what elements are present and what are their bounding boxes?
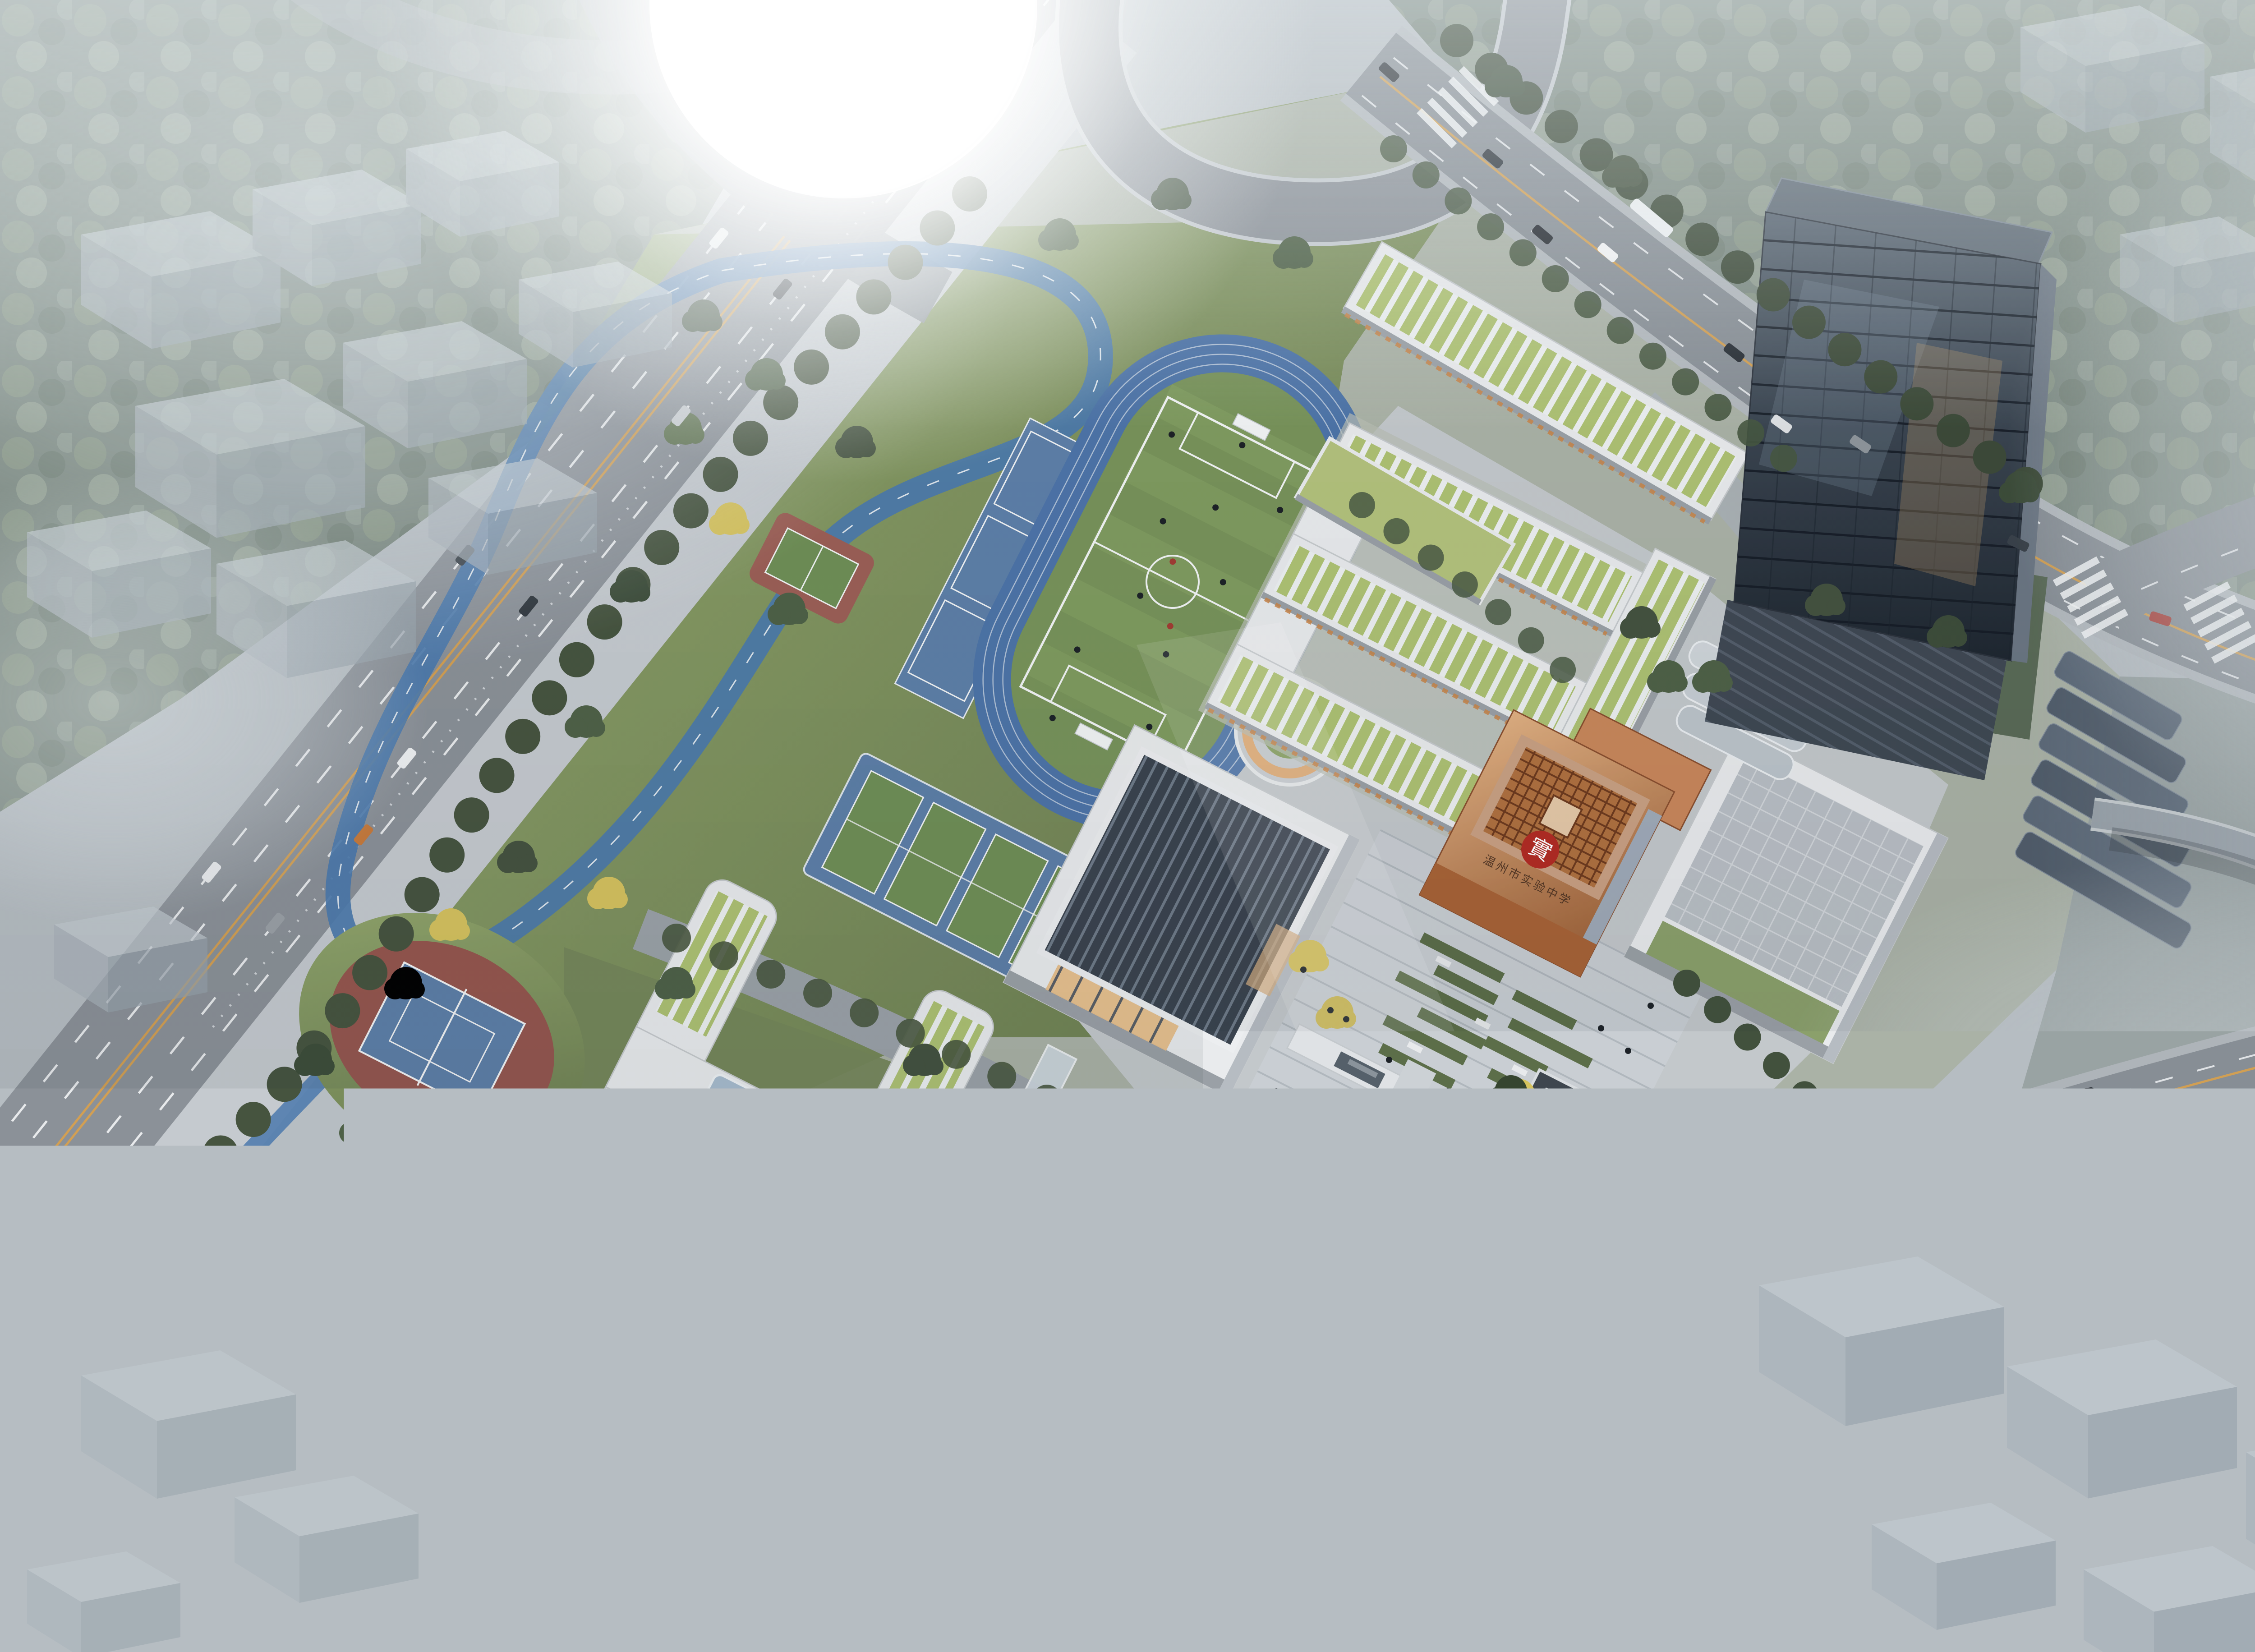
atmosphere [0, 0, 2255, 1652]
aerial-rendering-canvas: 實 温州市实验中学 [0, 0, 2255, 1652]
scene-svg: 實 温州市实验中学 [0, 0, 2255, 1652]
